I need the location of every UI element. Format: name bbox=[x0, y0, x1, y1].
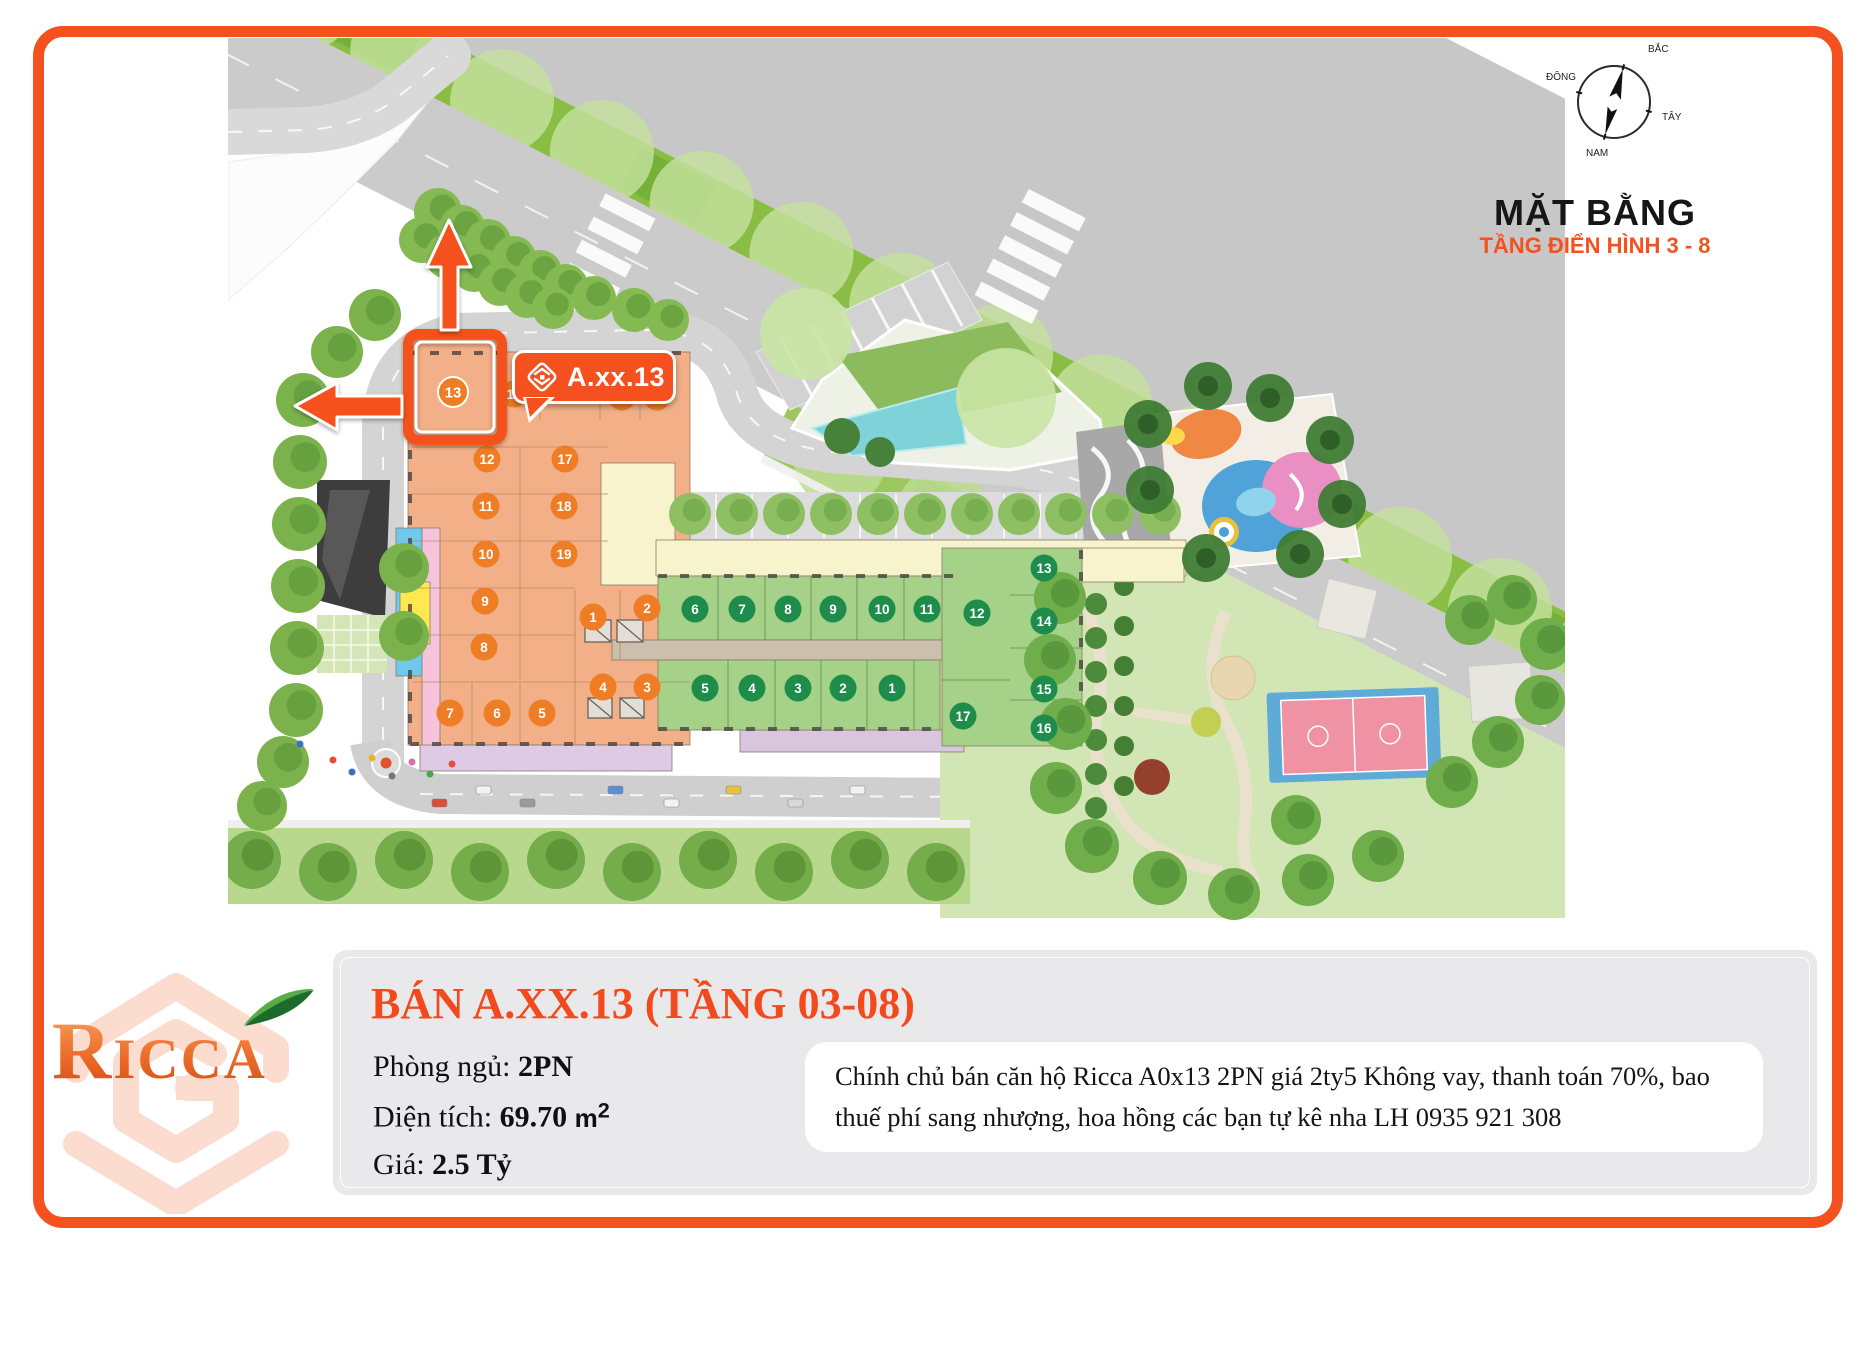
callout-label: A.xx.13 bbox=[567, 362, 665, 393]
svg-text:3: 3 bbox=[643, 680, 651, 695]
svg-text:5: 5 bbox=[701, 681, 709, 696]
plan-subtitle: TẦNG ĐIỂN HÌNH 3 - 8 bbox=[1445, 233, 1745, 259]
bedrooms-value: 2PN bbox=[518, 1050, 573, 1083]
svg-text:17: 17 bbox=[557, 452, 572, 467]
brand-name: Ricca bbox=[52, 1010, 267, 1092]
area-value: 69.70 bbox=[500, 1101, 568, 1134]
compass-rose-icon bbox=[1556, 46, 1696, 164]
svg-text:10: 10 bbox=[874, 602, 889, 617]
brand-logo: Ricca bbox=[52, 948, 312, 1218]
svg-text:9: 9 bbox=[481, 594, 489, 609]
svg-text:19: 19 bbox=[556, 547, 571, 562]
compass: BẮC ĐÔNG TÂY NAM bbox=[1556, 46, 1696, 164]
svg-text:11: 11 bbox=[920, 602, 935, 617]
svg-text:4: 4 bbox=[748, 681, 756, 696]
parking-structure bbox=[317, 480, 390, 673]
unit-callout: A.xx.13 bbox=[512, 350, 676, 404]
svg-text:4: 4 bbox=[599, 680, 607, 695]
svg-text:15: 15 bbox=[1036, 682, 1052, 697]
plan-title: MẶT BẰNG bbox=[1480, 192, 1710, 234]
svg-text:1: 1 bbox=[888, 681, 896, 696]
svg-text:13: 13 bbox=[1036, 561, 1052, 576]
compass-south-label: NAM bbox=[1586, 148, 1608, 159]
svg-text:9: 9 bbox=[829, 602, 837, 617]
price-label: Giá: bbox=[373, 1148, 425, 1181]
compass-west-label: TÂY bbox=[1662, 112, 1681, 123]
price-value: 2.5 Tỷ bbox=[432, 1148, 511, 1181]
svg-text:12: 12 bbox=[969, 606, 984, 621]
area-row: Diện tích: 69.70 m2 bbox=[373, 1097, 610, 1135]
svg-text:3: 3 bbox=[794, 681, 802, 696]
svg-text:13: 13 bbox=[445, 384, 462, 401]
svg-text:2: 2 bbox=[643, 601, 651, 616]
ricca-mark-icon bbox=[525, 360, 559, 394]
price-row: Giá: 2.5 Tỷ bbox=[373, 1148, 610, 1182]
area-label: Diện tích: bbox=[373, 1101, 492, 1134]
listing-specs: Phòng ngủ: 2PN Diện tích: 69.70 m2 Giá: … bbox=[373, 1050, 610, 1195]
svg-text:12: 12 bbox=[479, 452, 494, 467]
site-plan: 13141516121711181019981276543 6789101112… bbox=[45, 38, 1835, 924]
svg-text:1: 1 bbox=[589, 610, 597, 625]
svg-text:7: 7 bbox=[446, 706, 454, 721]
svg-text:16: 16 bbox=[1036, 721, 1052, 736]
svg-text:18: 18 bbox=[556, 499, 572, 514]
compass-east-label: ĐÔNG bbox=[1546, 72, 1576, 83]
svg-text:6: 6 bbox=[493, 706, 501, 721]
bedrooms-row: Phòng ngủ: 2PN bbox=[373, 1050, 610, 1084]
svg-text:7: 7 bbox=[738, 602, 746, 617]
listing-heading: BÁN A.XX.13 (TẦNG 03-08) bbox=[371, 978, 915, 1029]
svg-text:8: 8 bbox=[480, 640, 488, 655]
basketball-court bbox=[1266, 687, 1441, 783]
listing-panel: BÁN A.XX.13 (TẦNG 03-08) Phòng ngủ: 2PN … bbox=[333, 950, 1817, 1195]
compass-north-label: BẮC bbox=[1648, 44, 1669, 55]
listing-description: Chính chủ bán căn hộ Ricca A0x13 2PN giá… bbox=[805, 1042, 1763, 1152]
listing-image: 13141516121711181019981276543 6789101112… bbox=[0, 0, 1864, 1366]
svg-text:14: 14 bbox=[1036, 614, 1052, 629]
svg-text:10: 10 bbox=[478, 547, 493, 562]
callout-tail bbox=[523, 397, 555, 423]
bedrooms-label: Phòng ngủ: bbox=[373, 1050, 511, 1083]
area-unit: m2 bbox=[575, 1103, 610, 1133]
svg-text:6: 6 bbox=[691, 602, 699, 617]
svg-text:2: 2 bbox=[839, 681, 847, 696]
svg-text:17: 17 bbox=[955, 709, 970, 724]
svg-text:11: 11 bbox=[479, 499, 494, 514]
svg-text:8: 8 bbox=[784, 602, 792, 617]
svg-text:5: 5 bbox=[538, 706, 546, 721]
